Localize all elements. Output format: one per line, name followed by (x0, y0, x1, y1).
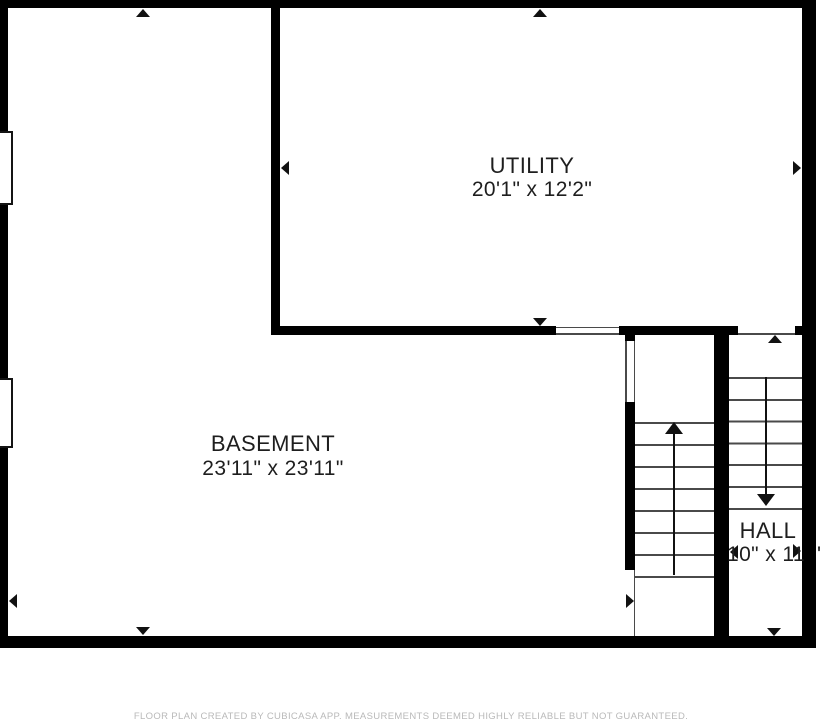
hall-dimension-overflow: ' (817, 543, 821, 566)
utility-room-label: UTILITY (490, 154, 575, 178)
window-left-lower (0, 378, 13, 448)
floor-plan-disclaimer: FLOOR PLAN CREATED BY CUBICASA APP. MEAS… (134, 712, 688, 720)
utility-arrow-up-icon (533, 9, 547, 17)
basement-room-dimensions: 23'11" x 23'11" (202, 457, 343, 480)
basement-arrow-up-icon (136, 9, 150, 17)
stair-lower-up-arrow-icon (665, 422, 683, 434)
basement-arrow-left-icon (9, 594, 17, 608)
wall-utility-bottom-seg1 (271, 326, 556, 335)
floor-plan: UTILITY 20'1" x 12'2" BASEMENT 23'11" x … (0, 0, 823, 720)
hall-room-label: HALL (740, 519, 797, 543)
utility-arrow-left-icon (281, 161, 289, 175)
window-left-upper (0, 131, 13, 205)
basement-arrow-down-icon (136, 627, 150, 635)
opening-basement-stair-left-line (625, 341, 627, 402)
utility-arrow-down-icon (533, 318, 547, 326)
opening-utility-hall-line (738, 333, 795, 335)
wall-stairwell-left-stub (625, 326, 635, 341)
wall-exterior-left (0, 0, 8, 648)
stair-upper-down-arrow-icon (757, 494, 775, 506)
utility-arrow-right-icon (793, 161, 801, 175)
hall-arrow-down-icon (767, 628, 781, 636)
wall-exterior-bottom (0, 636, 816, 648)
wall-stairwell-left (625, 402, 635, 570)
stair-lower-direction-line (673, 432, 675, 575)
wall-exterior-top (0, 0, 816, 8)
basement-arrow-right-icon (626, 594, 634, 608)
wall-utility-bottom-seg3 (795, 326, 802, 335)
hall-arrow-up-icon (768, 335, 782, 343)
wall-utility-left (271, 8, 280, 335)
stair-upper-direction-line (765, 377, 767, 495)
wall-stair-hall-divider (714, 326, 729, 636)
utility-room-dimensions: 20'1" x 12'2" (472, 178, 592, 201)
opening-utility-basement-top-line (556, 327, 619, 329)
opening-basement-stair-right-line (634, 341, 636, 402)
opening-utility-basement-bottom-line (556, 333, 619, 335)
hall-room-dimensions: 10" x 11 (727, 543, 805, 566)
basement-room-label: BASEMENT (211, 432, 335, 456)
